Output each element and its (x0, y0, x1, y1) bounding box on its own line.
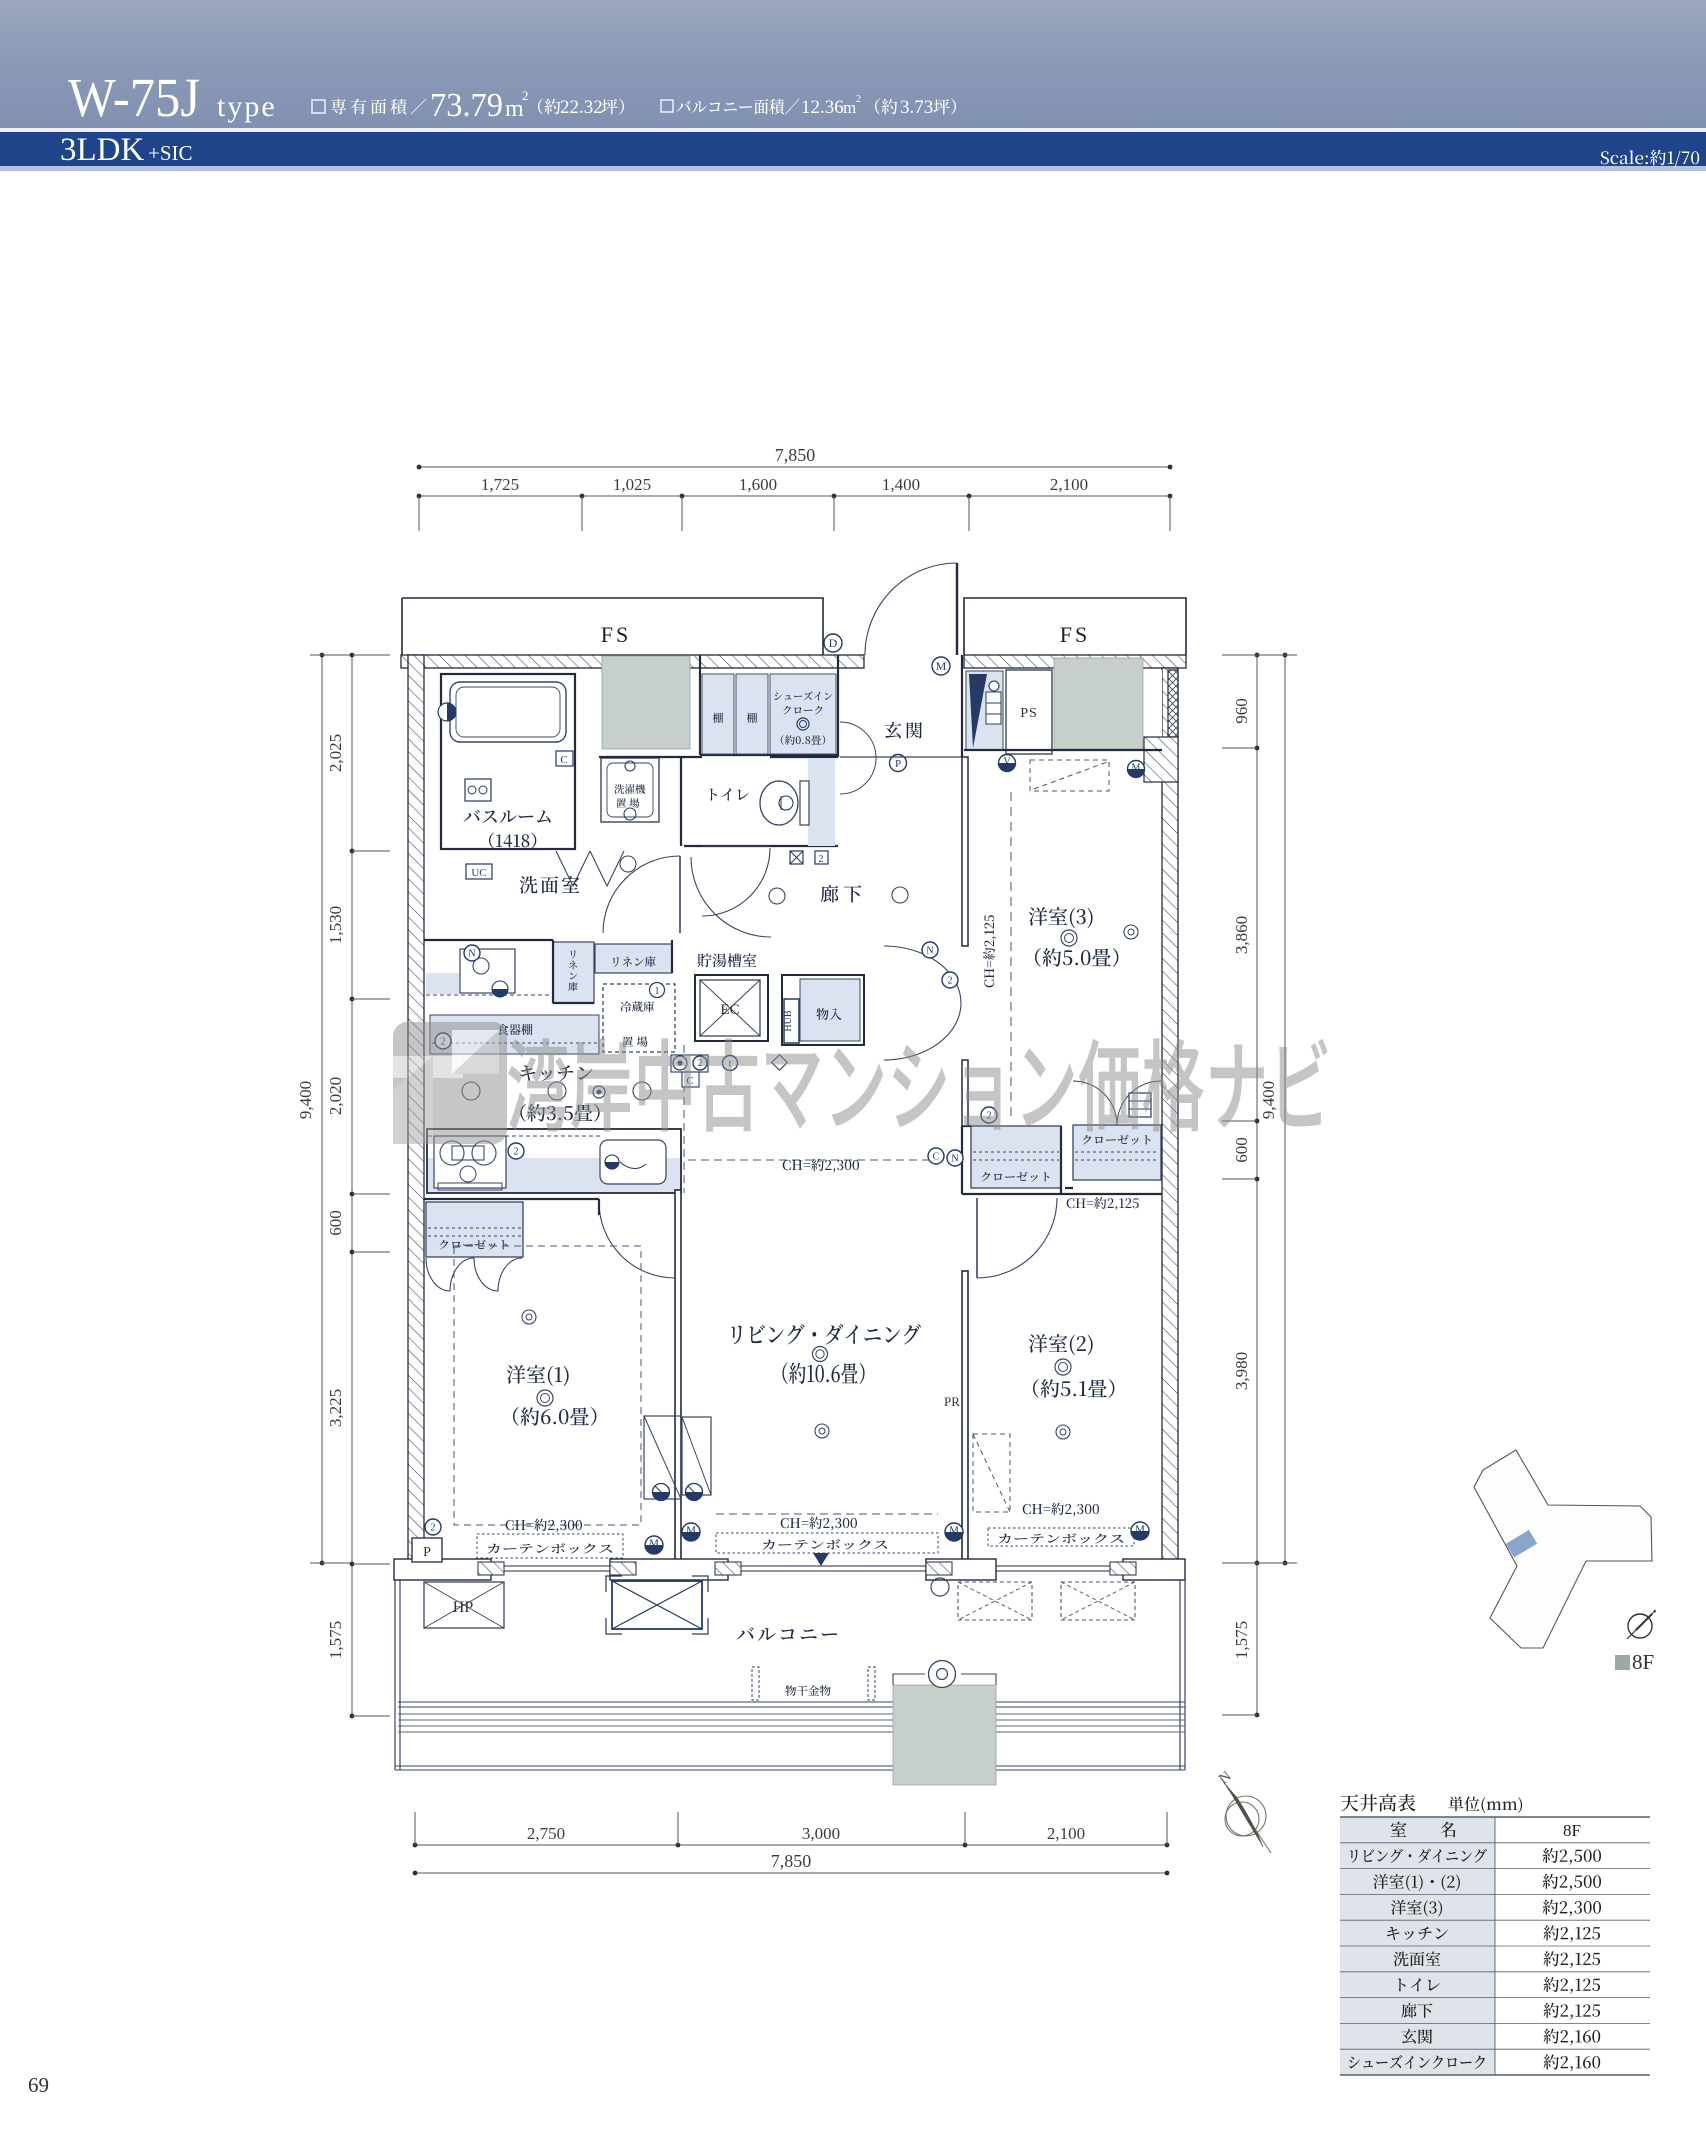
svg-text:2: 2 (522, 88, 529, 103)
svg-text:UC: UC (471, 867, 486, 879)
svg-text:M: M (1135, 1524, 1145, 1536)
svg-text:N: N (468, 949, 475, 960)
svg-text:1: 1 (655, 986, 660, 997)
svg-text:9,400: 9,400 (1259, 1081, 1278, 1119)
svg-text:1,725: 1,725 (481, 475, 519, 494)
svg-text:600: 600 (1232, 1137, 1251, 1163)
svg-text:M: M (1132, 763, 1141, 774)
svg-text:P: P (895, 758, 901, 770)
svg-text:3LDK: 3LDK (60, 132, 144, 168)
svg-text:73.79: 73.79 (430, 87, 503, 124)
svg-text:2: 2 (856, 94, 861, 105)
svg-text:PS: PS (1020, 706, 1038, 721)
svg-text:1,530: 1,530 (326, 906, 345, 944)
svg-text:9,400: 9,400 (296, 1081, 315, 1119)
svg-text:3,860: 3,860 (1232, 916, 1251, 954)
svg-text:1,025: 1,025 (613, 475, 651, 494)
svg-text:HUB: HUB (783, 1010, 794, 1031)
svg-text:12.36: 12.36 (801, 97, 844, 118)
svg-text:type: type (217, 90, 277, 123)
svg-text:2: 2 (948, 976, 953, 987)
svg-text:8F: 8F (1563, 1821, 1581, 1840)
svg-text:2,100: 2,100 (1050, 475, 1088, 494)
svg-text:N: N (926, 946, 933, 957)
svg-text:3.73: 3.73 (900, 97, 933, 118)
svg-text:1,575: 1,575 (1232, 1621, 1251, 1659)
svg-text:M: M (686, 1525, 696, 1537)
svg-text:HP: HP (453, 1599, 474, 1616)
svg-text:FS: FS (1060, 622, 1090, 647)
svg-text:7,850: 7,850 (771, 1851, 812, 1871)
svg-text:2,100: 2,100 (1047, 1824, 1085, 1843)
svg-text:PR: PR (944, 1394, 960, 1409)
svg-text:P: P (423, 1545, 431, 1560)
svg-text:FS: FS (601, 622, 631, 647)
svg-text:C: C (933, 1152, 940, 1163)
svg-text:3,225: 3,225 (326, 1389, 345, 1427)
svg-text:2: 2 (819, 854, 824, 865)
svg-text:m: m (843, 98, 856, 117)
svg-text:3,980: 3,980 (1232, 1352, 1251, 1390)
svg-text:N: N (951, 1154, 958, 1165)
svg-text:EC: EC (720, 1002, 739, 1018)
svg-text:1,575: 1,575 (326, 1621, 345, 1659)
svg-text:3,000: 3,000 (802, 1824, 840, 1843)
svg-text:7,850: 7,850 (775, 445, 816, 465)
svg-text:V: V (1003, 757, 1011, 768)
svg-text:8F: 8F (1632, 1650, 1654, 1674)
svg-text:M: M (936, 659, 947, 673)
svg-text:M: M (649, 1538, 659, 1550)
svg-text:1,400: 1,400 (882, 475, 920, 494)
svg-text:+SIC: +SIC (148, 141, 193, 165)
svg-text:1,600: 1,600 (739, 475, 777, 494)
svg-text:2: 2 (431, 1523, 436, 1534)
svg-text:C: C (560, 754, 567, 766)
svg-text:M: M (949, 1525, 959, 1537)
svg-text:2: 2 (514, 1147, 519, 1158)
svg-text:69: 69 (28, 2073, 49, 2097)
svg-text:2,020: 2,020 (326, 1077, 345, 1115)
svg-text:2,750: 2,750 (527, 1824, 565, 1843)
svg-text:960: 960 (1232, 698, 1251, 724)
svg-text:600: 600 (326, 1210, 345, 1236)
svg-text:22.32: 22.32 (560, 97, 603, 118)
svg-text:2,025: 2,025 (326, 734, 345, 772)
svg-text:D: D (829, 636, 838, 650)
svg-text:W-75J: W-75J (68, 67, 200, 128)
